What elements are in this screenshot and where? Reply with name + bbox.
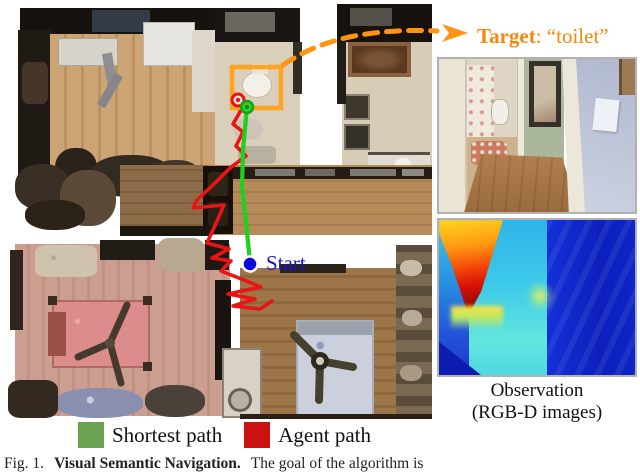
floorplan-map (0, 0, 437, 430)
toilet-tank (252, 64, 268, 74)
shortest-path-swatch (78, 422, 104, 448)
clutter-floral-pile (55, 388, 143, 418)
corner-clutter (8, 380, 58, 418)
room-toilet-wall-right (293, 42, 302, 94)
rgb-paper-sign (592, 98, 619, 132)
bath-fixture (238, 146, 276, 164)
shelf-item (400, 260, 422, 276)
observation-caption-line1: Observation (437, 380, 637, 402)
bed-pink-headboard (48, 312, 66, 356)
figure-number: Fig. 1. (4, 455, 44, 472)
ornate-rug (348, 42, 411, 77)
shelf-blob (22, 62, 48, 104)
round-basket (228, 388, 252, 412)
floral-couch (35, 245, 97, 277)
bed-post (143, 296, 152, 305)
start-label: Start (266, 251, 306, 276)
rgb-image (437, 57, 637, 214)
agent-path-label: Agent path (278, 423, 371, 448)
window-sill (255, 169, 295, 176)
shortest-path-label: Shortest path (112, 423, 222, 448)
wardrobe-white (192, 30, 215, 112)
shelf-item (400, 365, 422, 381)
bed-post (48, 296, 57, 305)
figure-title: Visual Semantic Navigation. (54, 455, 241, 472)
legend: Shortest path Agent path (78, 422, 418, 448)
room-toilet-wall-item (225, 12, 275, 32)
agent-path-swatch (244, 422, 270, 448)
fridge (143, 22, 195, 66)
target-keyword: Target (477, 24, 536, 48)
observation-caption-line2: (RGB-D images) (437, 402, 637, 424)
sink-top-view (233, 118, 263, 140)
arrow-head-icon (442, 24, 468, 42)
rgb-corner-frame (619, 59, 637, 95)
rgb-left-doorframe (439, 59, 467, 212)
figure-caption-text: The goal of the algorithm is (251, 455, 424, 472)
window-sill (402, 169, 424, 176)
window-sill (305, 169, 335, 176)
rgb-toilet (491, 99, 509, 125)
target-value: : “toilet” (536, 24, 609, 48)
rgb-shower-curtain (467, 65, 494, 137)
floral-chair (158, 238, 204, 272)
dark-fixture (344, 124, 370, 150)
depth-far-wall (547, 220, 635, 375)
depth-yellow-band (451, 306, 503, 330)
depth-image (437, 218, 637, 377)
hall-clutter (25, 200, 85, 230)
toilet-top-view (242, 72, 272, 98)
wardrobe-panel (208, 172, 228, 196)
rgb-picture-frame (529, 61, 561, 127)
figure-caption: Fig. 1.Visual Semantic Navigation.The go… (4, 455, 640, 473)
room-blue-wall-bottom (240, 414, 432, 419)
hallway-wall-bottom (120, 226, 210, 236)
room-rug-wall-left (337, 40, 346, 104)
bed-post (143, 362, 152, 371)
window-sill (350, 169, 396, 176)
dark-dresser (100, 240, 155, 260)
clutter-dark-pile (145, 385, 205, 417)
room-rug-wall-item (350, 8, 392, 26)
dark-fixture (344, 94, 370, 120)
target-label: Target: “toilet” (477, 24, 609, 49)
wall-strip-left (10, 250, 23, 330)
shelf-item (402, 310, 422, 326)
bed-blue-pillows (298, 322, 372, 335)
dark-nightstand (205, 240, 229, 270)
observation-caption: Observation (RGB-D images) (437, 380, 637, 424)
room-topleft-wall-item (92, 10, 150, 32)
bed-pink (52, 300, 150, 368)
hallway-floor-dark (120, 165, 208, 235)
wardrobe-panel (208, 202, 228, 226)
